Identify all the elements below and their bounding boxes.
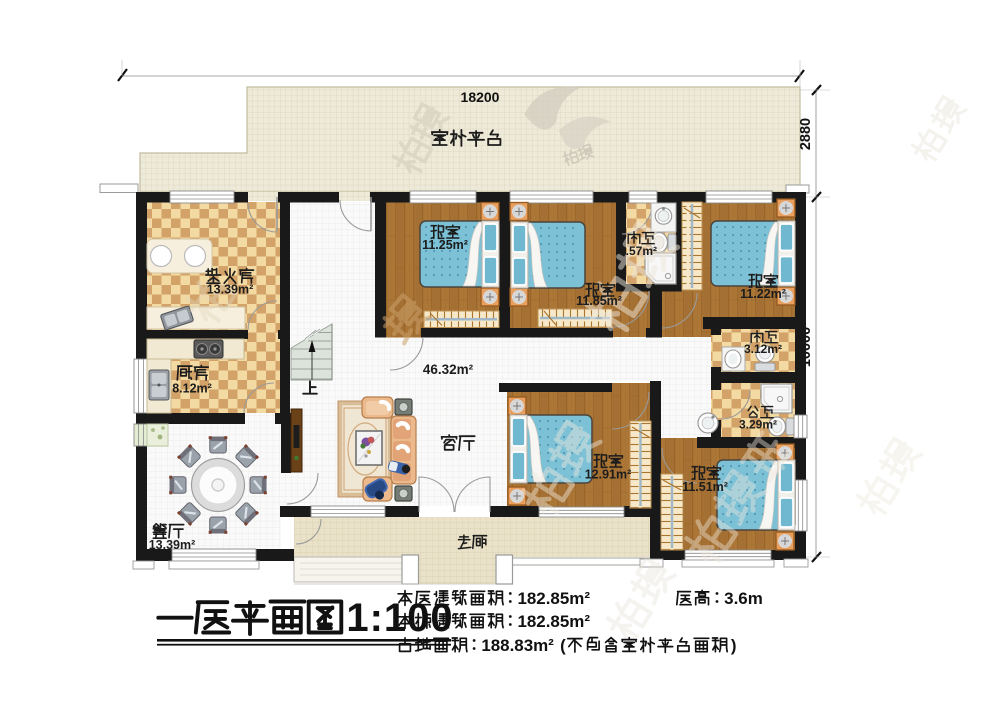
svg-text:182.85m²: 182.85m² xyxy=(517,612,590,631)
svg-text:3.29m²: 3.29m² xyxy=(739,418,777,432)
svg-text:3.6m: 3.6m xyxy=(724,589,763,608)
svg-text:1:100: 1:100 xyxy=(346,596,453,640)
svg-text:8.12m²: 8.12m² xyxy=(172,382,212,396)
svg-text:3.12m²: 3.12m² xyxy=(744,342,782,356)
svg-text:11.25m²: 11.25m² xyxy=(422,238,468,252)
svg-text:): ) xyxy=(731,636,737,655)
svg-text:(: ( xyxy=(560,636,566,655)
svg-text:3.57m²: 3.57m² xyxy=(619,244,657,258)
svg-text:182.85m²: 182.85m² xyxy=(517,589,590,608)
svg-text:11.85m²: 11.85m² xyxy=(576,294,622,308)
svg-text:2880: 2880 xyxy=(798,118,814,150)
svg-text:13.39m²: 13.39m² xyxy=(149,538,196,552)
svg-text:46.32m²: 46.32m² xyxy=(423,362,474,377)
svg-text:11.51m²: 11.51m² xyxy=(682,480,728,494)
svg-text:11.22m²: 11.22m² xyxy=(740,287,786,301)
svg-text:188.83m²: 188.83m² xyxy=(481,636,554,655)
svg-text:12.91m²: 12.91m² xyxy=(585,468,632,482)
svg-text:18200: 18200 xyxy=(461,89,500,105)
svg-text:13.39m²: 13.39m² xyxy=(207,283,254,297)
